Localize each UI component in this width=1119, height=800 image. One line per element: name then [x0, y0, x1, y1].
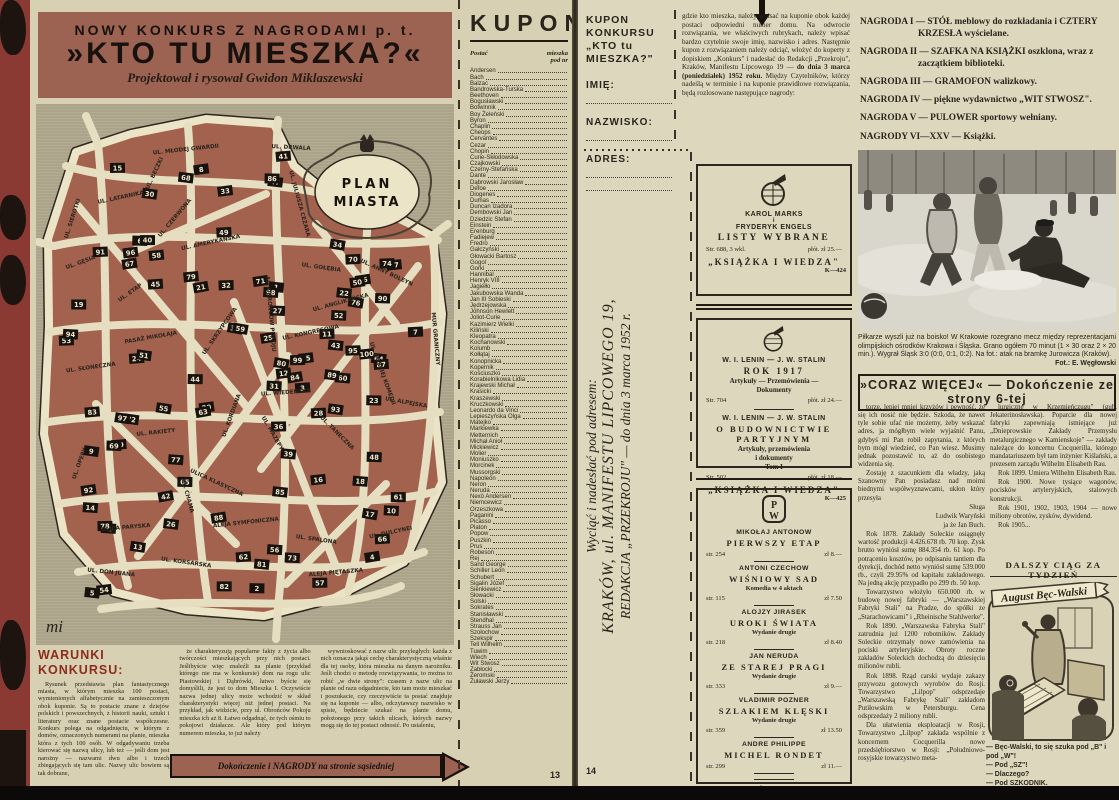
- house-marker: 41: [275, 151, 291, 162]
- mailing-line2: KRAKÓW, ul. MANIFESTU LIPCOWEGO 19,: [600, 152, 618, 780]
- article-paragraph: ja że Jan Buch.: [858, 522, 985, 530]
- coupon-column: KUPON Postać mieszka pod nr AndersenBach…: [462, 0, 572, 786]
- house-number: 19: [74, 301, 84, 309]
- house-number: 16: [313, 476, 324, 485]
- ad2-price-1: płót. zł 24.—: [808, 397, 842, 404]
- football-photo: [858, 150, 1116, 331]
- rules-text-2: że charakteryzują popularne fakty z życi…: [179, 648, 310, 737]
- house-number: 56: [270, 546, 280, 555]
- form-divider: [674, 10, 676, 146]
- coupon-name-row: Żuławski Jerzy: [470, 679, 568, 685]
- article-column-2: lurgiczne w Krzemieńczugu" (gub. Jekater…: [990, 404, 1117, 556]
- house-marker: 93: [327, 403, 343, 415]
- house-number: 26: [166, 520, 177, 529]
- contest-credit: Projektował i rysował Gwidon Miklaszewsk…: [38, 70, 452, 86]
- arrow-label: Dokończenie i NAGRODY na stronie sąsiedn…: [170, 754, 442, 778]
- page-number-13: 13: [550, 770, 560, 780]
- cartoon-panel: August Bęc-Walski: [986, 582, 1117, 749]
- rules-text-3: wywnioskować z nazw ulic przyległych: ka…: [321, 648, 452, 730]
- house-number: 74: [382, 260, 392, 268]
- house-marker: 81: [254, 559, 270, 570]
- house-number: 57: [315, 579, 325, 587]
- house-number: 10: [386, 507, 396, 515]
- ksiazka-i-wiedza-logo: [759, 172, 789, 206]
- house-number: 90: [378, 295, 388, 303]
- piw-book: ANDRE PHILIPPEMICHEL RONDETstr. 299zł 11…: [702, 741, 846, 774]
- house-marker: 90: [375, 293, 390, 304]
- house-number: 32: [221, 282, 231, 290]
- spine-mark: [0, 620, 26, 690]
- house-number: 61: [394, 494, 404, 502]
- contest-instructions: gdzie kto mieszka, należy wpisać na kupo…: [682, 12, 850, 97]
- ad-kiw-lenin-stalin: W. I. LENIN — J. W. STALIN ROK 1917 Arty…: [696, 318, 852, 468]
- house-marker: 54: [96, 584, 112, 596]
- house-number: 99: [293, 357, 303, 365]
- piw-book: VLADIMIR POZNERSZLAKIEM KLĘSKIWydanie dr…: [702, 697, 846, 738]
- house-number: 51: [139, 351, 150, 360]
- scan-edge: [0, 786, 1119, 800]
- ad-piw: P W MIKOŁAJ ANTONOWPIERWSZY ETAPstr. 254…: [696, 488, 852, 784]
- piw-book-list: MIKOŁAJ ANTONOWPIERWSZY ETAPstr. 254zł 8…: [702, 529, 846, 774]
- house-marker: 15: [110, 163, 125, 173]
- spine-mark: [0, 0, 26, 55]
- piw-book: ALOJZY JIRASEKUROKI ŚWIATAWydanie drugie…: [702, 609, 846, 650]
- house-number: 55: [158, 404, 169, 413]
- ad1-pages: Str. 688, 3 wkl.: [706, 246, 746, 253]
- house-marker: 56: [267, 544, 283, 555]
- coupon-name-list: AndersenBachBalzacBandrowska-TurskaBeeth…: [470, 68, 568, 685]
- house-marker: 73: [285, 552, 301, 563]
- house-marker: 10: [384, 505, 400, 516]
- house-number: 34: [332, 241, 343, 250]
- article-paragraph: Sługa: [858, 504, 985, 512]
- house-marker: 23: [366, 395, 381, 405]
- house-number: 73: [287, 554, 297, 562]
- coupon-list-header: Postać mieszka pod nr: [470, 50, 568, 64]
- house-marker: 39: [280, 448, 296, 459]
- article-paragraph: Zostaję z szacunkiem dla władzy, jaką Sz…: [858, 470, 985, 503]
- house-number: 40: [143, 237, 153, 245]
- house-marker: 62: [235, 551, 251, 562]
- city-plan-map: 1234567891011121314151617181920212223242…: [36, 104, 454, 645]
- house-number: 79: [186, 273, 197, 282]
- house-number: 2: [254, 585, 259, 593]
- rules-column-1: WARUNKI KONKURSU: Rysunek przedstawia pl…: [38, 648, 169, 786]
- article-paragraph: lurgiczne w Krzemieńczugu" (gub. Jekater…: [990, 404, 1117, 469]
- house-number: 89: [327, 371, 338, 380]
- house-number: 33: [220, 187, 231, 196]
- contest-kicker: NOWY KONKURS Z NAGRODAMI p. t.: [38, 22, 452, 38]
- article-column-1: torze, lepiej mniej krzyżów i pewność, ż…: [858, 404, 985, 784]
- ad1-title: LISTY WYBRANE: [702, 233, 846, 243]
- house-number: 41: [278, 152, 288, 161]
- article-paragraph: Rok 1899. Umiera Wilhelm Elisabeth Rau.: [990, 470, 1117, 478]
- article-paragraph: Towarzystwo włożyło 650.000 rb. w budowę…: [858, 589, 985, 622]
- entry-coupon-title1: KUPON KONKURSU: [586, 14, 672, 40]
- house-number: 86: [267, 175, 277, 183]
- mailing-line3: REDAKCJA „PRZEKROJU" — do dnia 3 marca 1…: [618, 152, 634, 780]
- house-number: 68: [181, 174, 192, 183]
- prize-item: NAGRODA II — SZAFKA NA KSIĄŻKI oszklona,…: [860, 46, 1116, 70]
- article-paragraph: Rok 1900. Nowe tysiące wagonów, pocisków…: [990, 479, 1117, 503]
- coupon-col-number: mieszka pod nr: [547, 50, 568, 64]
- artist-signature: mi: [46, 617, 63, 636]
- house-number: 39: [283, 450, 293, 459]
- photo-credit: Fot.: E. Węgłowski: [858, 360, 1116, 369]
- house-marker: 44: [188, 374, 203, 384]
- page-number-14: 14: [586, 766, 596, 776]
- prize-item: NAGRODA V — PULOWER sportowy wełniany.: [860, 112, 1116, 124]
- ad2-sub-1a: Artykuły — Przemówienia —: [702, 377, 846, 385]
- prize-item: NAGRODA I — STÓŁ meblowy do rozkładania …: [860, 16, 1116, 40]
- fold-dotted-line: [584, 149, 690, 151]
- article-paragraph: Dla ułatwienia eksploatacji w Rosji, Tow…: [858, 722, 985, 763]
- article-paragraph: torze, lepiej mniej krzyżów i pewność, ż…: [858, 404, 985, 469]
- house-number: 13: [132, 543, 143, 552]
- house-number: 70: [348, 256, 358, 264]
- house-marker: 83: [84, 406, 100, 417]
- cartoon-caption: — Bęc-Walski, to się szuka pod „B" i pod…: [986, 744, 1117, 789]
- article-paragraph: Rok 1878. Zakłady Soleckie osiągnęły war…: [858, 531, 985, 588]
- house-number: 36: [274, 423, 284, 431]
- house-marker: 89: [324, 369, 340, 381]
- house-marker: 94: [63, 329, 79, 340]
- prize-item: NAGRODA IV — piękne wydawnictwo „WIT STW…: [860, 94, 1116, 106]
- spine-mark: [0, 730, 26, 786]
- house-marker: 26: [163, 518, 179, 530]
- house-number: 45: [150, 280, 160, 289]
- coupon-cut-line: [458, 0, 460, 786]
- spine-mark: [0, 195, 26, 240]
- cartouche-line1: PLAN: [342, 177, 393, 192]
- house-marker: 19: [71, 300, 86, 310]
- fold-cut-line: [690, 152, 692, 786]
- house-number: 43: [331, 341, 342, 350]
- entry-coupon-title2: „KTO tu MIESZKA?": [586, 40, 672, 66]
- article-paragraph: Rok 1901, 1902, 1903, 1904 — nowe milion…: [990, 505, 1117, 521]
- house-marker: 86: [265, 173, 280, 183]
- coupon-title: KUPON: [470, 10, 568, 42]
- house-number: 52: [334, 312, 344, 320]
- ad2-authors-2: W. I. LENIN — J. W. STALIN: [702, 415, 846, 422]
- house-number: 42: [160, 492, 171, 502]
- house-marker: 43: [328, 340, 344, 352]
- house-marker: 77: [168, 454, 184, 465]
- house-marker: 68: [178, 172, 194, 184]
- magazine-spine: [0, 0, 30, 786]
- ksiazka-i-wiedza-logo: [762, 324, 786, 352]
- house-number: 54: [99, 586, 110, 595]
- house-number: 92: [83, 486, 94, 495]
- house-number: 81: [257, 560, 267, 569]
- house-marker: 18: [352, 476, 368, 487]
- house-marker: 14: [82, 502, 98, 513]
- house-marker: 99: [290, 355, 305, 365]
- house-marker: 48: [367, 452, 382, 463]
- house-number: 17: [364, 510, 375, 520]
- ad2-title-1: ROK 1917: [702, 366, 846, 376]
- house-number: 69: [109, 442, 119, 450]
- house-number: 48: [369, 453, 379, 461]
- ad1-author1: KAROL MARKS: [702, 211, 846, 218]
- ad2-tom: Tom I: [702, 463, 846, 471]
- house-number: 21: [196, 283, 207, 293]
- piw-book: ANTONI CZECHOWWIŚNIOWY SADKomedia w 4 ak…: [702, 565, 846, 606]
- house-number: 85: [275, 488, 286, 497]
- article-footer: DALSZY CIĄG ZA TYDZIEŃ: [990, 560, 1117, 580]
- football: [861, 293, 887, 319]
- house-number: 18: [355, 477, 365, 486]
- rules-text-1: Rysunek przedstawia plan fantastycznego …: [38, 681, 169, 777]
- house-marker: 57: [312, 578, 327, 588]
- house-marker: 91: [93, 247, 109, 258]
- house-marker: 51: [136, 349, 152, 361]
- article-paragraph: Ludwik Waryński: [858, 513, 985, 521]
- svg-text:P: P: [771, 500, 777, 511]
- house-number: 67: [124, 260, 135, 269]
- piw-logo: P W: [761, 494, 787, 524]
- house-marker: 61: [391, 492, 406, 502]
- ad1-price: płót. zł 25.—: [808, 246, 842, 253]
- field-label-name: IMIĘ:: [586, 80, 672, 91]
- double-rule: [696, 304, 852, 310]
- svg-text:W: W: [769, 511, 779, 522]
- article-paragraph: Rok 1905...: [990, 522, 1117, 530]
- house-marker: 33: [217, 185, 233, 197]
- house-number: 94: [66, 331, 76, 339]
- house-number: 97: [117, 414, 128, 423]
- piw-book: MIKOŁAJ ANTONOWPIERWSZY ETAPstr. 254zł 8…: [702, 529, 846, 562]
- prize-list: NAGRODA I — STÓŁ meblowy do rozkładania …: [860, 16, 1116, 149]
- house-number: 77: [171, 456, 181, 465]
- piw-book: JAN NERUDAZE STAREJ PRAGIWydanie drugies…: [702, 653, 846, 694]
- ad2-pages-1: Str. 704: [706, 397, 726, 404]
- cartoon-caption-line: — Bęc-Walski, to się szuka pod „B" i pod…: [986, 744, 1117, 762]
- cartoon-caption-line: — Pod „SZ"!: [986, 762, 1117, 771]
- name-write-line: [586, 91, 672, 104]
- house-number: 14: [85, 504, 95, 513]
- house-marker: 16: [310, 474, 326, 486]
- contest-title: »KTO TU MIESZKA?«: [38, 38, 452, 70]
- house-marker: 79: [183, 271, 199, 283]
- house-number: 96: [125, 249, 136, 258]
- house-marker: 32: [218, 280, 233, 291]
- house-number: 15: [113, 164, 123, 172]
- house-number: 84: [290, 373, 301, 383]
- house-number: 58: [151, 251, 162, 260]
- house-number: 95: [348, 347, 358, 355]
- house-number: 62: [238, 553, 248, 562]
- house-marker: 58: [148, 250, 164, 262]
- house-marker: 45: [148, 279, 164, 290]
- house-number: 80: [276, 359, 287, 369]
- house-marker: 69: [106, 441, 121, 452]
- article-paragraph: Rok 1898. Rząd carski wydaje zakazy przy…: [858, 673, 985, 722]
- house-number: 91: [95, 248, 105, 256]
- thick-rule: [696, 478, 852, 480]
- house-marker: 85: [272, 486, 288, 498]
- ad1-author2: FRYDERYK ENGELS: [702, 224, 846, 231]
- mailing-line1: Wyciąć i nadesłać pod adresem:: [584, 152, 600, 780]
- cartoon-divider: [990, 576, 1117, 577]
- left-page: NOWY KONKURS Z NAGRODAMI p. t. »KTO TU M…: [30, 0, 572, 786]
- continuation-arrow-banner: Dokończenie i NAGRODY na stronie sąsiedn…: [170, 752, 470, 782]
- house-number: 22: [339, 289, 350, 298]
- house-marker: 70: [345, 254, 361, 265]
- spine-mark: [0, 255, 26, 305]
- ad-kiw-marks-engels: KAROL MARKS i FRYDERYK ENGELS LISTY WYBR…: [696, 164, 852, 296]
- house-marker: 2: [249, 583, 264, 593]
- ad1-code: K—424: [702, 267, 846, 274]
- photo-caption: Piłkarze wyszli już na boisko! W Krakowi…: [858, 334, 1116, 369]
- house-marker: 50: [349, 276, 365, 288]
- house-number: 27: [273, 307, 283, 315]
- ad1-publisher: „KSIĄŻKA I WIEDZA": [702, 257, 846, 267]
- house-marker: 52: [331, 310, 347, 321]
- article-paragraph: Rok 1890. „Warszawska Fabryka Stali" zat…: [858, 623, 985, 672]
- right-page: KUPON KONKURSU „KTO tu MIESZKA?" IMIĘ: N…: [578, 0, 1119, 786]
- house-marker: 8: [193, 163, 209, 175]
- house-number: 50: [352, 278, 363, 287]
- house-number: 59: [235, 325, 246, 335]
- ad2-sub-2b: i dokumenty: [702, 454, 846, 462]
- cartouche-line2: MIASTA: [333, 195, 400, 210]
- cartoon-caption-line: — Dlaczego?: [986, 771, 1117, 780]
- house-number: 7: [413, 328, 418, 336]
- surname-write-line: [586, 128, 672, 141]
- house-number: 63: [198, 408, 209, 418]
- ad2-sub-2a: Artykuły, przemówienia: [702, 445, 846, 453]
- coupon-col-character: Postać: [470, 50, 488, 64]
- house-number: 83: [87, 408, 97, 417]
- rules-heading: WARUNKI KONKURSU:: [38, 648, 169, 678]
- ad2-authors-1: W. I. LENIN — J. W. STALIN: [702, 357, 846, 364]
- contest-title-banner: NOWY KONKURS Z NAGRODAMI p. t. »KTO TU M…: [38, 12, 452, 98]
- prize-item: NAGRODA III — GRAMOFON walizkowy.: [860, 76, 1116, 88]
- house-number: 44: [190, 376, 200, 384]
- mailing-instructions-rotated: Wyciąć i nadesłać pod adresem: KRAKÓW, u…: [584, 152, 684, 780]
- ad2-sub-1b: Dokumenty: [702, 386, 846, 394]
- prize-item: NAGRODY VI—XXV — Książki.: [860, 131, 1116, 143]
- house-marker: 82: [217, 581, 232, 591]
- house-marker: 96: [122, 247, 138, 259]
- field-label-surname: NAZWISKO:: [586, 117, 672, 128]
- house-number: 93: [330, 405, 341, 414]
- house-marker: 40: [140, 235, 155, 245]
- house-marker: 7: [408, 327, 424, 338]
- house-number: 31: [269, 382, 279, 390]
- house-marker: 92: [80, 484, 96, 496]
- ad2-title-2: O BUDOWNICTWIE PARTYJNYM: [702, 424, 846, 444]
- house-number: 23: [369, 397, 379, 405]
- house-number: 82: [219, 583, 229, 591]
